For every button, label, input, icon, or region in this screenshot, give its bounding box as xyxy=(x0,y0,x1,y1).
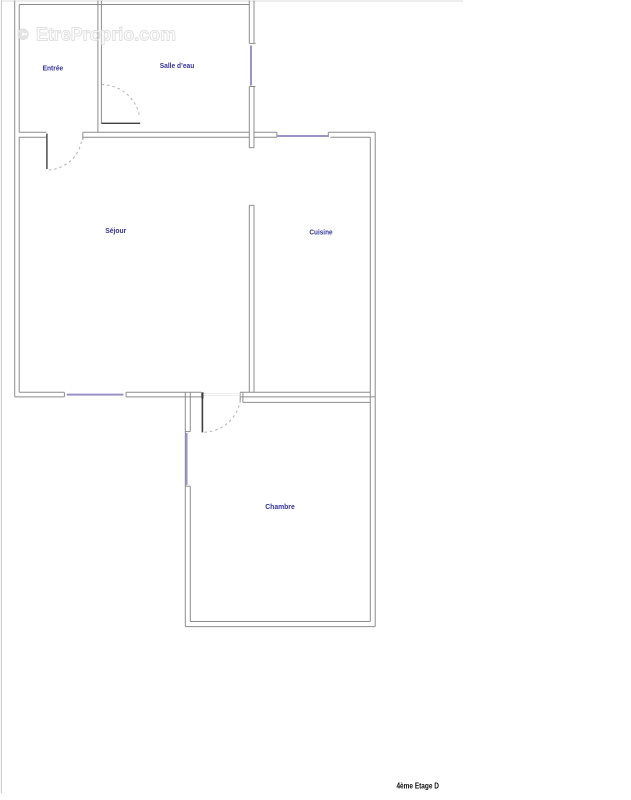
svg-text:Salle d’eau: Salle d’eau xyxy=(160,61,195,70)
svg-text:©: © xyxy=(18,28,29,44)
svg-text:4ème Etage D: 4ème Etage D xyxy=(396,781,439,790)
svg-text:Chambre: Chambre xyxy=(265,502,295,511)
svg-text:Séjour: Séjour xyxy=(105,226,126,235)
svg-text:Entrée: Entrée xyxy=(43,63,64,72)
svg-text:EtreProprio.com: EtreProprio.com xyxy=(36,24,176,44)
svg-text:Cuisine: Cuisine xyxy=(309,228,332,237)
